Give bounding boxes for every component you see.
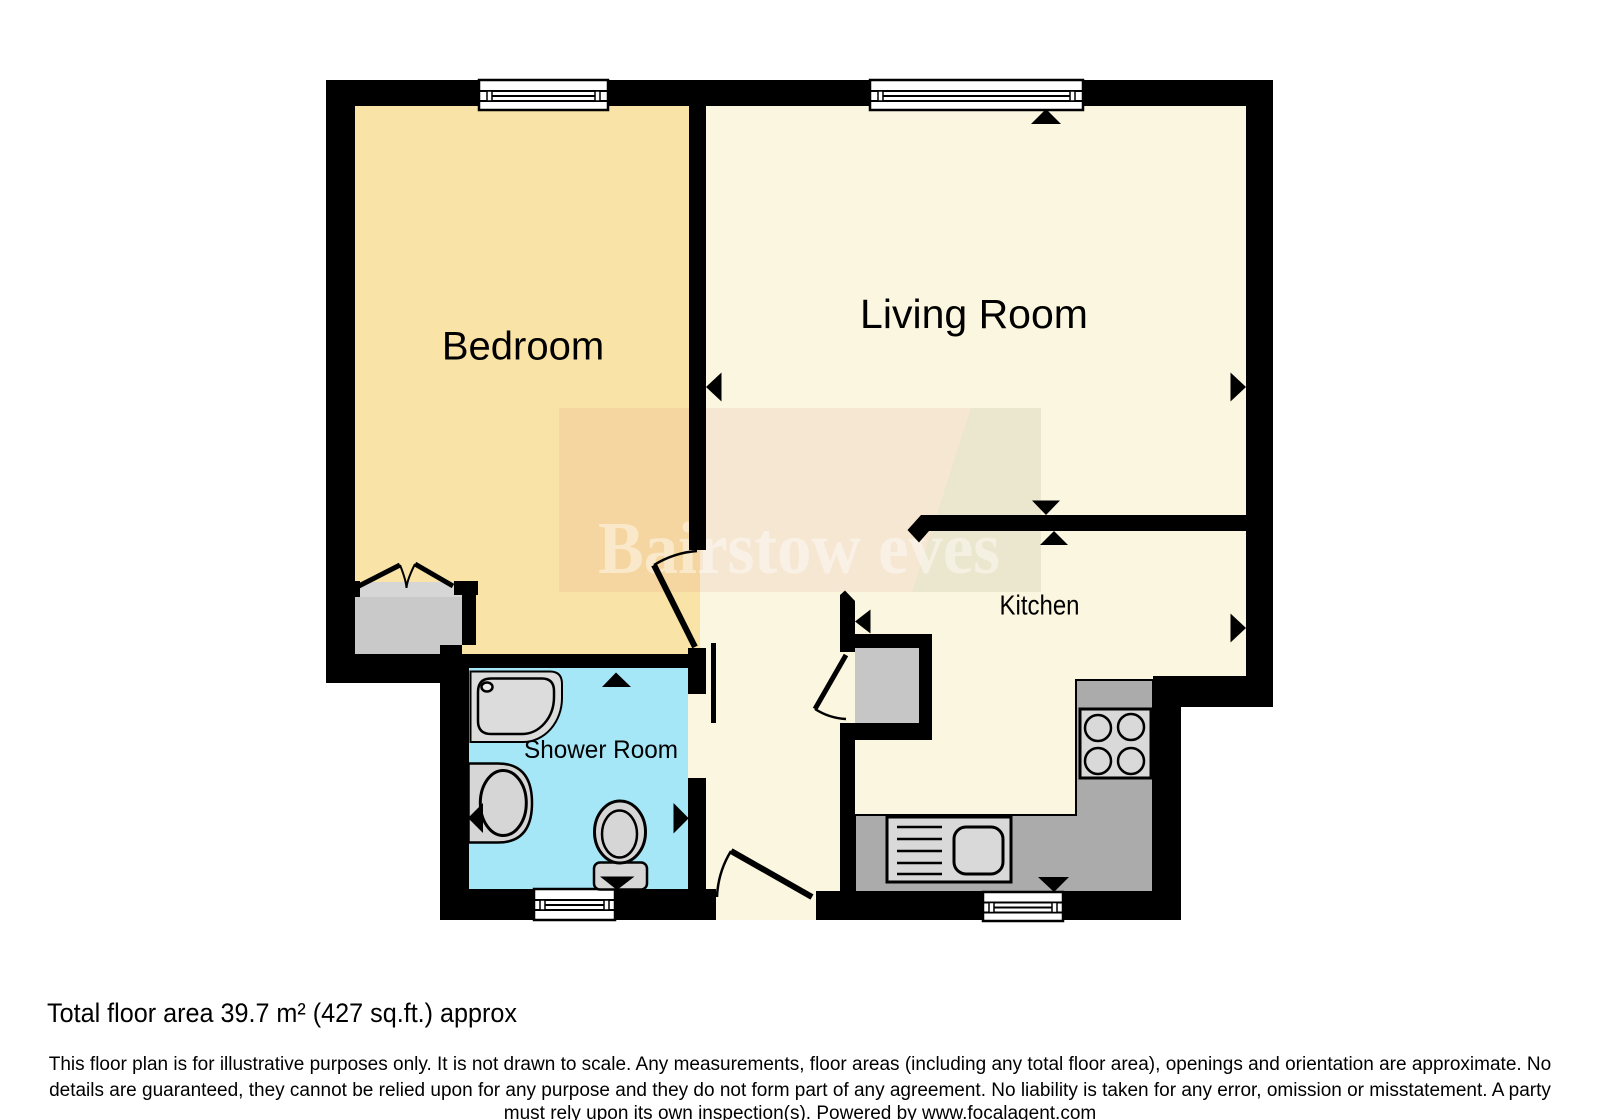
svg-text:This floor plan is for illustr: This floor plan is for illustrative purp… xyxy=(49,1054,1551,1075)
svg-text:details are guaranteed, they c: details are guaranteed, they cannot be r… xyxy=(49,1080,1551,1101)
svg-text:Living Room: Living Room xyxy=(860,291,1088,337)
svg-text:Shower Room: Shower Room xyxy=(524,736,678,764)
svg-text:Bedroom: Bedroom xyxy=(442,325,604,369)
svg-text:must rely upon its own inspect: must rely upon its own inspection(s). Po… xyxy=(504,1103,1096,1120)
svg-text:Kitchen: Kitchen xyxy=(1000,590,1080,621)
svg-text:Total floor area 39.7 m² (427: Total floor area 39.7 m² (427 sq.ft.) ap… xyxy=(47,998,517,1028)
